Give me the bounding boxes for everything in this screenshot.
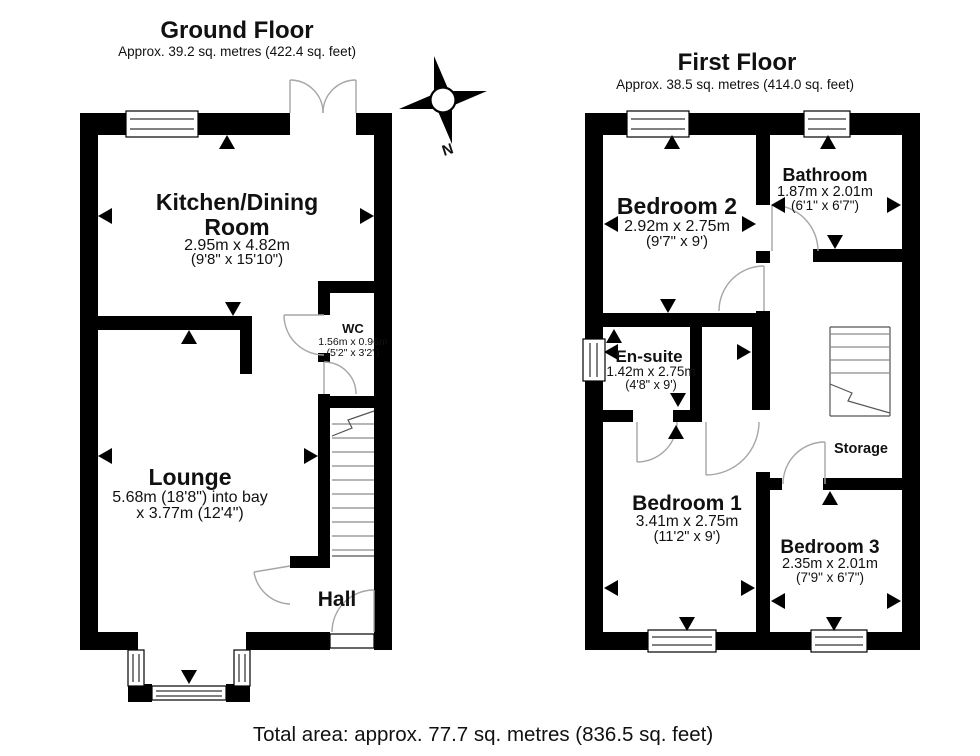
total-area-text: Total area: approx. 77.7 sq. metres (836… [253, 723, 713, 746]
ensuite-dims-metric: 1.42m x 2.75m [606, 364, 695, 379]
dimension-arrow-right [737, 344, 751, 360]
dimension-arrow-down [827, 235, 843, 249]
ensuite-dims-imperial: (4'8" x 9') [625, 378, 677, 392]
room-label-bedroom-1: Bedroom 1 3.41m x 2.75m (11'2" x 9') [632, 492, 742, 545]
bedroom2-name: Bedroom 2 [617, 193, 737, 219]
bedroom3-name: Bedroom 3 [780, 537, 879, 558]
first-floor-plan: First Floor Approx. 38.5 sq. metres (414… [583, 49, 920, 652]
room-label-en-suite: En-suite 1.42m x 2.75m (4'8" x 9') [606, 347, 695, 392]
dimension-arrow-down [225, 302, 241, 316]
dimension-arrow-right [887, 197, 901, 213]
compass-north-label: N [440, 140, 456, 160]
dimension-arrow-up [219, 135, 235, 149]
compass-icon: N [399, 56, 487, 160]
dimension-arrow-up [606, 329, 622, 343]
dimension-arrow-down [660, 299, 676, 313]
dimension-arrow-down [679, 617, 695, 631]
ground-floor-title: Ground Floor [160, 17, 313, 44]
first-floor-subtitle: Approx. 38.5 sq. metres (414.0 sq. feet) [616, 77, 854, 92]
lounge-dims-line1: 5.68m (18'8") into bay [112, 489, 267, 506]
room-label-bedroom-3: Bedroom 3 2.35m x 2.01m (7'9" x 6'7") [780, 537, 879, 585]
room-label-bathroom: Bathroom 1.87m x 2.01m (6'1" x 6'7") [777, 165, 873, 213]
dimension-arrow-right [741, 580, 755, 596]
ground-floor-subtitle: Approx. 39.2 sq. metres (422.4 sq. feet) [118, 44, 356, 59]
room-label-storage: Storage [834, 441, 888, 457]
dimension-arrow-right [742, 216, 756, 232]
bathroom-name: Bathroom [783, 165, 868, 185]
first-floor-stairs [830, 327, 890, 416]
dimension-arrow-right [304, 448, 318, 464]
first-floor-title: First Floor [678, 49, 797, 76]
ground-floor-stairs [332, 411, 374, 556]
bedroom3-dims-imperial: (7'9" x 6'7") [796, 570, 864, 585]
dimension-arrow-down [670, 393, 686, 407]
dimension-arrow-up [181, 330, 197, 344]
dimension-arrow-down [181, 670, 197, 684]
kitchen-name-line1: Kitchen/Dining [156, 189, 318, 215]
bedroom1-dims-metric: 3.41m x 2.75m [636, 513, 739, 530]
dimension-arrow-left [604, 216, 618, 232]
dimension-arrow-down [826, 617, 842, 631]
dimension-arrow-right [887, 593, 901, 609]
dimension-arrow-left [771, 593, 785, 609]
floorplan-svg: Ground Floor Approx. 39.2 sq. metres (42… [0, 0, 980, 751]
room-label-hall: Hall [318, 588, 357, 611]
dimension-arrow-up [822, 491, 838, 505]
lounge-dims-line2: x 3.77m (12'4") [136, 505, 243, 522]
ground-floor-plan: Ground Floor Approx. 39.2 sq. metres (42… [80, 17, 392, 702]
kitchen-dims-imperial: (9'8" x 15'10") [191, 251, 283, 268]
bedroom1-name: Bedroom 1 [632, 492, 742, 515]
dimension-arrow-left [604, 580, 618, 596]
bedroom1-dims-imperial: (11'2" x 9') [654, 529, 721, 545]
wc-name: WC [342, 321, 364, 336]
dimension-arrow-right [360, 208, 374, 224]
dimension-arrow-left [98, 208, 112, 224]
room-label-kitchen-dining: Kitchen/Dining Room 2.95m x 4.82m (9'8" … [156, 189, 318, 268]
wc-dims-imperial: (5'2" x 3'2") [327, 347, 380, 359]
bedroom2-dims-imperial: (9'7" x 9') [646, 233, 708, 250]
room-label-lounge: Lounge 5.68m (18'8") into bay x 3.77m (1… [112, 464, 267, 522]
lounge-name: Lounge [148, 464, 231, 490]
dimension-arrow-up [668, 425, 684, 439]
room-label-bedroom-2: Bedroom 2 2.92m x 2.75m (9'7" x 9') [617, 193, 737, 250]
dimension-arrow-left [98, 448, 112, 464]
floorplan: Ground Floor Approx. 39.2 sq. metres (42… [0, 0, 980, 751]
bathroom-dims-imperial: (6'1" x 6'7") [791, 198, 859, 213]
